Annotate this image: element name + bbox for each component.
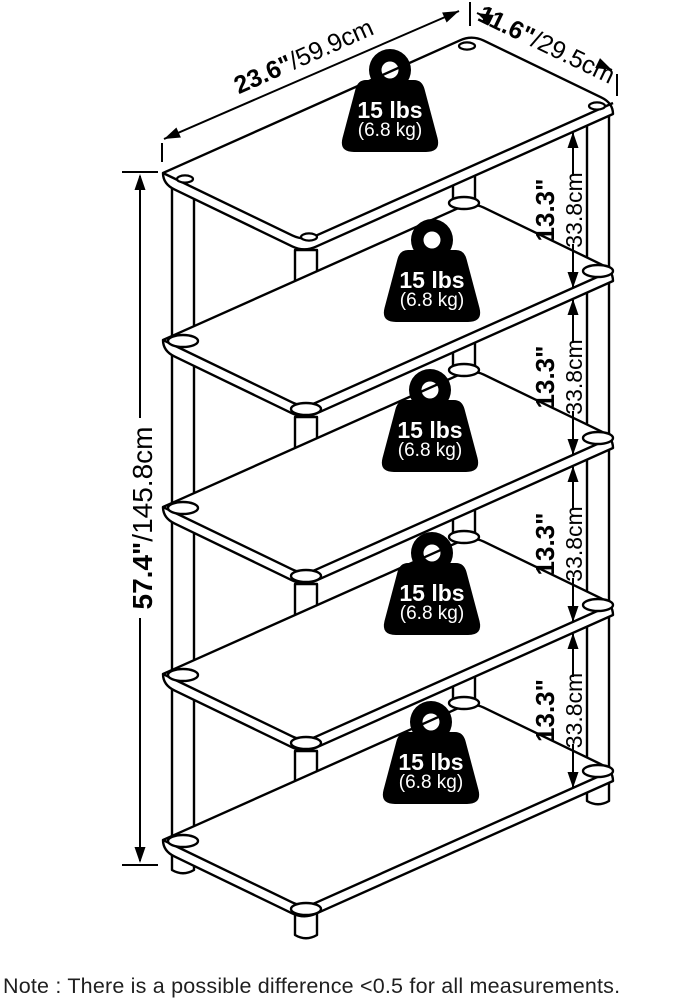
- support-tube: [172, 516, 194, 677]
- tube-junction: [291, 737, 321, 749]
- dim-spacing-metric-label: 33.8cm: [561, 506, 587, 581]
- shelf-dimension-diagram-page: 23.6"/59.9cm11.6"/29.5cm57.4"/145.8cm13.…: [0, 0, 679, 1005]
- badge-kilograms-label: (6.8 kg): [358, 120, 422, 141]
- shelf-dimension-diagram: 23.6"/59.9cm11.6"/29.5cm57.4"/145.8cm13.…: [0, 0, 679, 1005]
- tube-junction: [449, 697, 479, 709]
- corner-socket-hole: [177, 175, 193, 182]
- tube-junction: [291, 570, 321, 582]
- dim-spacing-inches-label: 13.3": [530, 179, 560, 242]
- tube-junction: [449, 197, 479, 209]
- dim-spacing-metric-label: 33.8cm: [561, 673, 587, 748]
- tube-junction: [583, 265, 613, 277]
- support-tube: [172, 182, 194, 343]
- dim-spacing-metric-label: 33.8cm: [561, 339, 587, 414]
- badge-kilograms-label: (6.8 kg): [400, 290, 464, 311]
- tube-junction: [168, 835, 198, 847]
- tube-junction: [168, 669, 198, 681]
- tube-junction: [291, 903, 321, 915]
- dim-spacing-inches-label: 13.3": [530, 679, 560, 742]
- corner-socket-hole: [459, 42, 475, 49]
- support-tube: [172, 683, 194, 843]
- dim-spacing-metric-label: 33.8cm: [561, 172, 587, 247]
- corner-socket-hole: [301, 233, 317, 240]
- support-tube: [587, 446, 609, 607]
- dim-height: 57.4"/145.8cm: [122, 172, 158, 865]
- tube-junction: [583, 765, 613, 777]
- support-tube: [587, 613, 609, 773]
- tube-junction: [583, 432, 613, 444]
- corner-socket-hole: [589, 102, 605, 109]
- dim-height-label-inches: 57.4": [127, 542, 158, 610]
- dim-height-label: 57.4"/145.8cm: [127, 427, 158, 610]
- tube-junction: [449, 531, 479, 543]
- support-tube: [587, 112, 609, 273]
- tube-junction: [168, 335, 198, 347]
- dimension-arrowhead: [135, 847, 146, 863]
- tube-junction: [291, 403, 321, 415]
- support-tube: [172, 349, 194, 510]
- tube-junction: [168, 502, 198, 514]
- tube-junction: [449, 364, 479, 376]
- badge-kilograms-label: (6.8 kg): [399, 772, 463, 793]
- badge-kilograms-label: (6.8 kg): [398, 440, 462, 461]
- dim-spacing-inches-label: 13.3": [530, 346, 560, 409]
- dimension-arrowhead: [164, 128, 181, 140]
- dimension-arrowhead: [135, 174, 146, 190]
- note-text: Note : There is a possible difference <0…: [3, 974, 620, 999]
- tube-junction: [583, 599, 613, 611]
- dim-spacing-inches-label: 13.3": [530, 513, 560, 576]
- badge-kilograms-label: (6.8 kg): [400, 603, 464, 624]
- dimension-arrowhead: [442, 11, 459, 23]
- dim-width-label-inches: 23.6": [230, 50, 297, 100]
- dim-height-label-metric: /145.8cm: [127, 427, 158, 542]
- support-tube: [587, 279, 609, 440]
